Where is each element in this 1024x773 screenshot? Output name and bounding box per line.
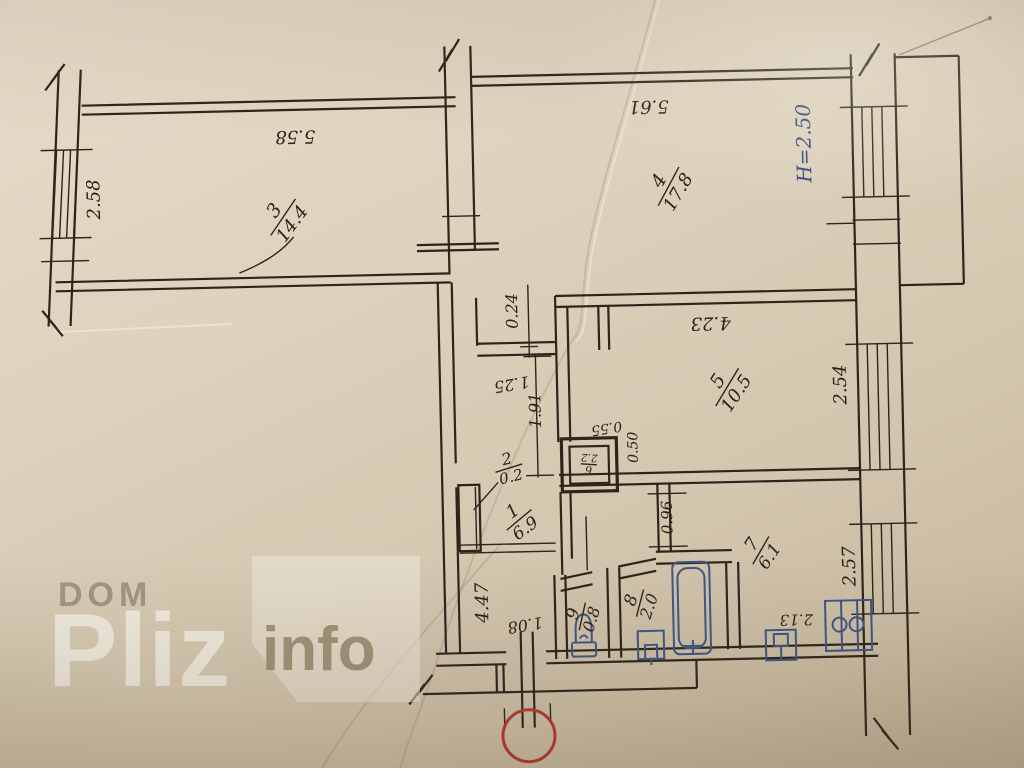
window-room5 [845,343,916,471]
dim-room4-width: 5.61 [628,95,669,117]
wall-break-icon [42,310,63,336]
room-label-7: 7 6.1 [734,525,787,575]
wall-break-icon [874,717,899,750]
entrance-circle-annotation [502,709,555,762]
dim-room5-width: 4.23 [690,312,732,334]
floorplan-photo: 3 14.4 4 17.8 5 10.5 1 6.9 2 0.2 6 2. [0,0,1024,768]
dim-hall-length: 4.47 [471,582,493,624]
svg-text:0.8: 0.8 [579,604,605,634]
dim-room3-window: 2.58 [83,179,105,221]
dim-room5-window: 2.54 [830,364,852,406]
room-label-6: 6 2.2 [579,451,599,477]
closet-2 [458,485,480,551]
room-label-4: 4 17.8 [638,156,698,216]
room-labels: 3 14.4 4 17.8 5 10.5 1 6.9 2 0.2 6 2. [237,154,789,644]
dim-room3-width: 5.58 [275,125,316,147]
svg-text:2.0: 2.0 [636,591,662,622]
dim-shaft-depth: 0.50 [625,431,642,463]
room-label-3: 3 14.4 [252,186,314,248]
bathtub-icon [672,562,711,655]
dim-kitchen-window: 2.57 [839,546,861,588]
room-label-1: 1 6.9 [494,493,545,546]
wall-break-icon [858,44,880,76]
svg-text:0.2: 0.2 [497,465,524,488]
room-label-8: 8 2.0 [618,584,663,623]
dim-kitchen-opening: 0.96 [658,500,677,534]
room-label-2: 2 0.2 [491,446,527,488]
dim-closet-depth: 1.91 [525,392,545,428]
wall-break-icon [438,39,460,71]
window-room4 [840,106,910,198]
svg-text:2.2: 2.2 [580,451,599,464]
room-label-5: 5 10.5 [697,357,758,418]
wall-break-icon [45,64,66,90]
dim-kitchen: 2.13 [780,610,815,629]
floorplan-drawing: 3 14.4 4 17.8 5 10.5 1 6.9 2 0.2 6 2. [0,0,1024,768]
dim-wall-thickness: 0.24 [502,293,522,329]
leader-line [473,482,499,510]
ceiling-height-label: H=2.50 [791,103,817,184]
dim-shaft-width: 0.55 [590,417,623,438]
balcony [894,16,998,285]
svg-text:2: 2 [499,448,514,469]
dim-entry-width: 1.08 [506,613,544,638]
wall-break-icon [409,675,434,705]
balcony-door [826,219,901,245]
